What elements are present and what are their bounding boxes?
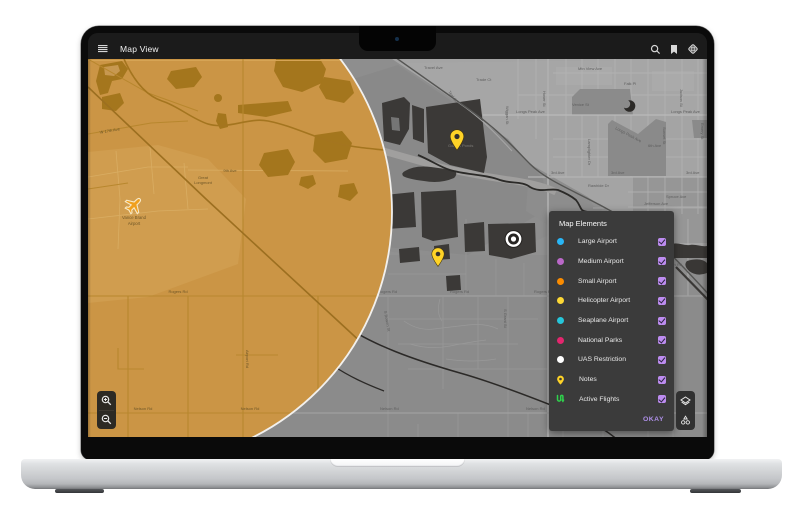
svg-text:Rawhide Dr: Rawhide Dr <box>588 183 610 188</box>
svg-text:Travel Ave: Travel Ave <box>424 65 443 70</box>
svg-text:Airport Rd: Airport Rd <box>245 350 250 368</box>
svg-text:Hover St: Hover St <box>542 91 547 107</box>
svg-text:Mtn View Ave: Mtn View Ave <box>578 66 603 71</box>
svg-text:Rogers Rd: Rogers Rd <box>168 289 187 294</box>
svg-text:Lamplighter Dr: Lamplighter Dr <box>587 139 592 166</box>
svg-text:Nelson Rd: Nelson Rd <box>380 406 399 411</box>
svg-text:Longmont: Longmont <box>194 180 213 185</box>
svg-text:Wiggan St: Wiggan St <box>505 106 510 125</box>
svg-text:Vance Brand: Vance Brand <box>122 215 147 220</box>
svg-text:Jefferson Ave: Jefferson Ave <box>644 201 669 206</box>
svg-text:6th Ave: 6th Ave <box>648 143 662 148</box>
svg-text:Nelson Rd: Nelson Rd <box>241 406 260 411</box>
svg-text:Longs Peak Ave: Longs Peak Ave <box>671 109 701 114</box>
svg-text:3rd Ave: 3rd Ave <box>686 170 700 175</box>
svg-text:S Grant St: S Grant St <box>503 309 508 329</box>
svg-text:9th Ave: 9th Ave <box>223 168 237 173</box>
svg-text:Rogers Rd: Rogers Rd <box>450 289 469 294</box>
svg-text:Falk Pl: Falk Pl <box>624 81 636 86</box>
svg-text:Spruce Ave: Spruce Ave <box>666 194 687 199</box>
svg-text:Airport: Airport <box>128 221 141 226</box>
svg-text:Judson St: Judson St <box>679 89 684 108</box>
svg-text:3rd Ave: 3rd Ave <box>551 170 565 175</box>
svg-text:Longs Peak Ave: Longs Peak Ave <box>516 109 546 114</box>
svg-text:Rogers Rd: Rogers Rd <box>378 289 397 294</box>
svg-text:Trade Ct: Trade Ct <box>476 77 492 82</box>
svg-text:3rd Ave: 3rd Ave <box>611 170 625 175</box>
svg-text:Nelson Rd: Nelson Rd <box>134 406 153 411</box>
svg-text:Nelson Rd: Nelson Rd <box>526 406 545 411</box>
svg-text:Venice St: Venice St <box>572 102 590 107</box>
svg-text:Sunset St: Sunset St <box>662 127 667 145</box>
